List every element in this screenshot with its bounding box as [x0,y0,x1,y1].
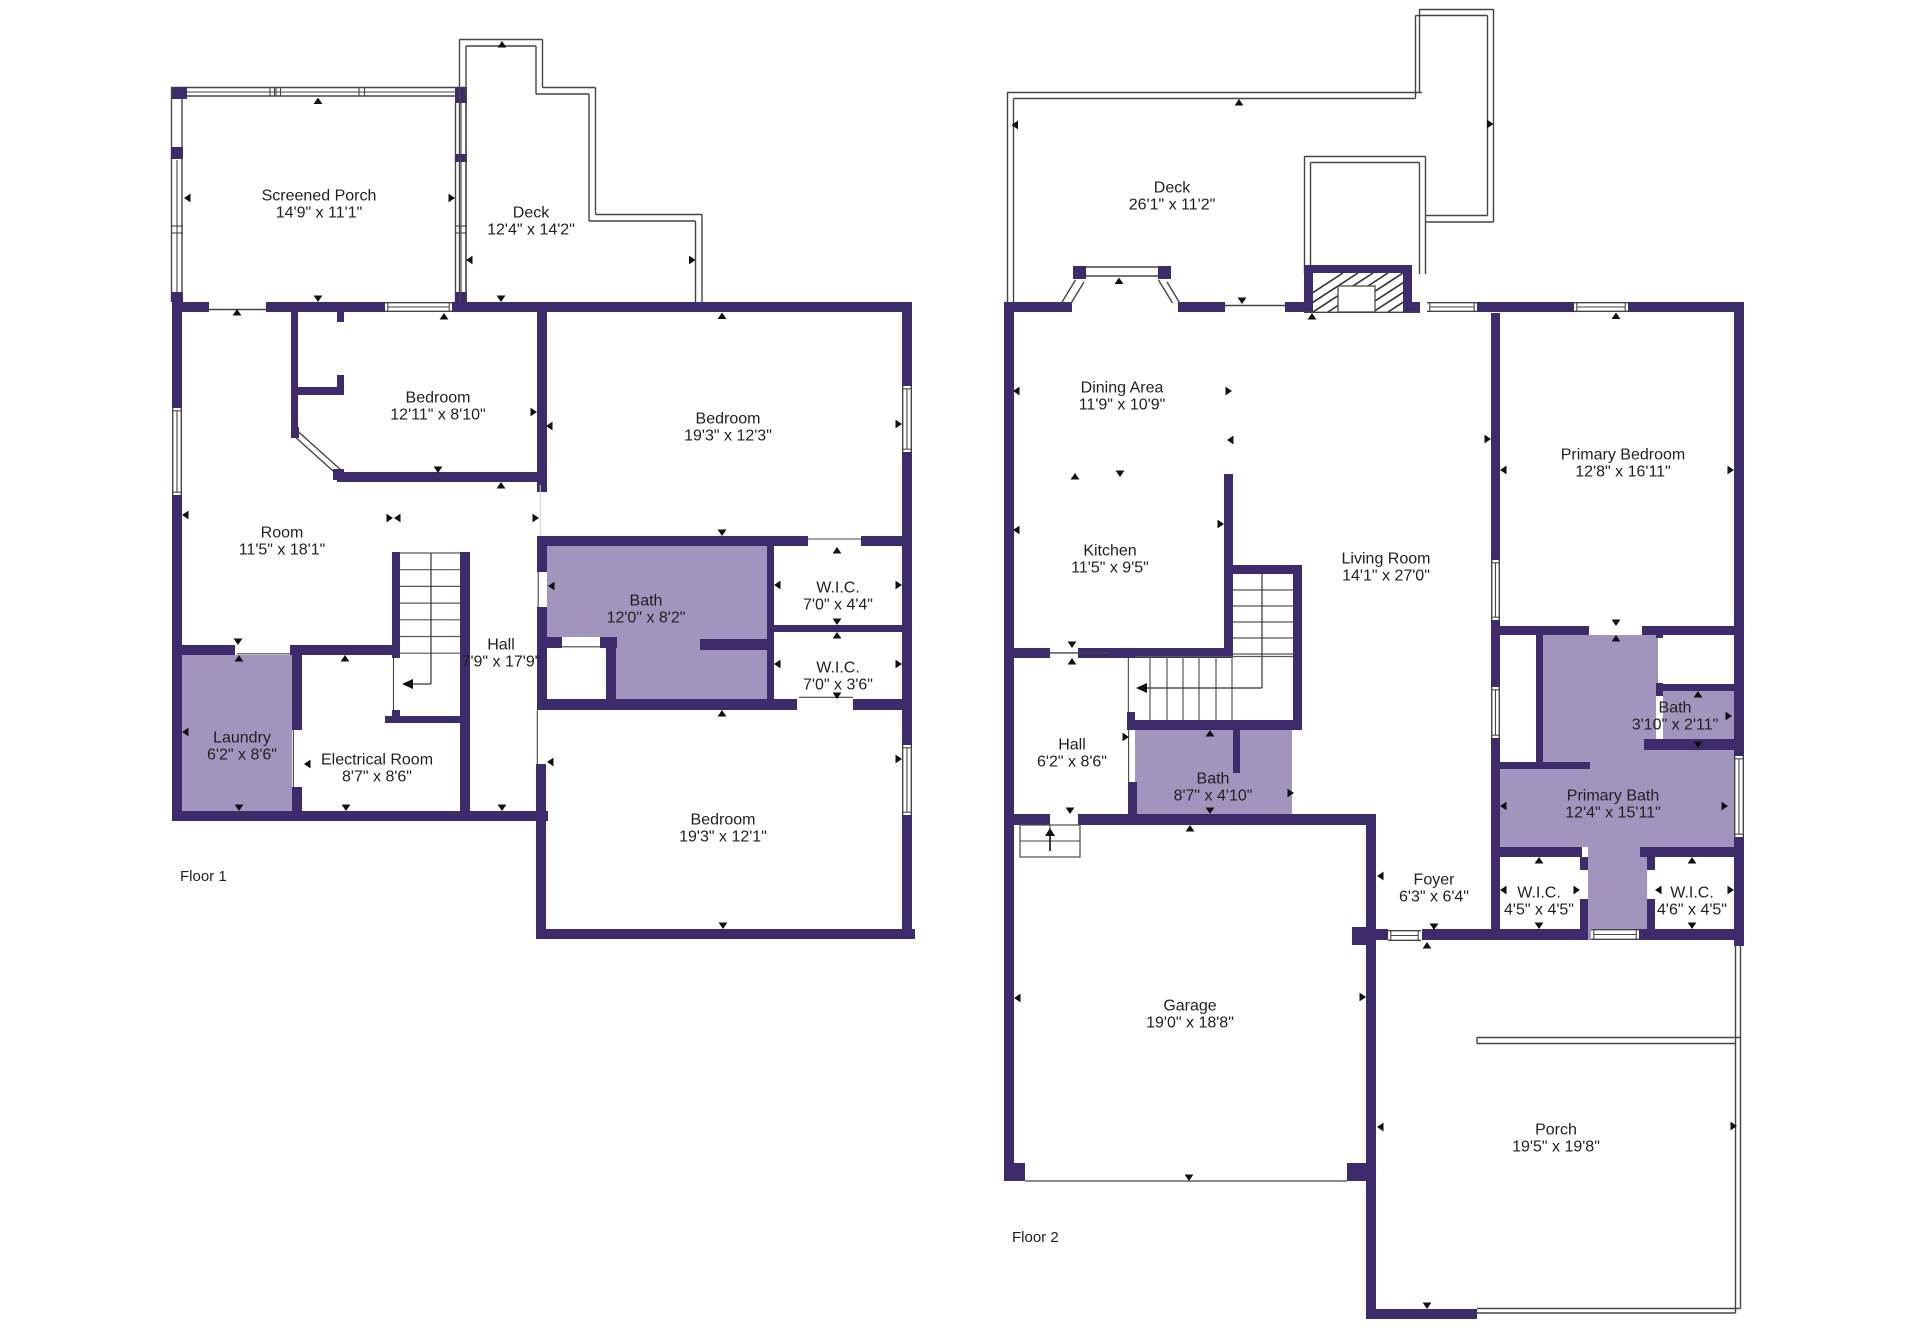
svg-text:Kitchen: Kitchen [1083,543,1136,560]
svg-text:19'0" x 18'8": 19'0" x 18'8" [1146,1015,1234,1032]
svg-text:12'4" x 15'11": 12'4" x 15'11" [1565,805,1660,822]
svg-text:11'5" x 18'1": 11'5" x 18'1" [239,542,326,559]
svg-text:W.I.C.: W.I.C. [1517,885,1561,902]
svg-text:Bedroom: Bedroom [406,390,471,407]
svg-text:Foyer: Foyer [1414,872,1456,889]
svg-text:Living Room: Living Room [1342,551,1431,568]
svg-text:Laundry: Laundry [213,730,271,747]
svg-text:14'9" x 11'1": 14'9" x 11'1" [276,205,363,222]
svg-text:19'5" x 19'8": 19'5" x 19'8" [1512,1139,1600,1156]
svg-text:Floor 1: Floor 1 [180,868,227,885]
svg-text:W.I.C.: W.I.C. [816,580,860,597]
svg-text:Deck: Deck [513,205,550,222]
svg-text:19'3" x 12'1": 19'3" x 12'1" [679,829,767,846]
svg-text:11'5" x 9'5": 11'5" x 9'5" [1071,560,1149,577]
svg-text:Bedroom: Bedroom [696,411,761,428]
svg-text:3'10" x 2'11": 3'10" x 2'11" [1632,717,1719,734]
svg-text:Porch: Porch [1535,1122,1577,1139]
svg-text:Primary Bedroom: Primary Bedroom [1561,447,1685,464]
svg-text:26'1" x 11'2": 26'1" x 11'2" [1129,197,1216,214]
svg-text:8'7" x 4'10": 8'7" x 4'10" [1174,788,1253,805]
svg-text:Screened Porch: Screened Porch [262,188,377,205]
svg-text:Bedroom: Bedroom [691,812,756,829]
svg-text:6'2" x 8'6": 6'2" x 8'6" [1037,754,1107,771]
svg-text:Hall: Hall [487,637,515,654]
svg-text:W.I.C.: W.I.C. [816,660,860,677]
svg-text:12'4" x 14'2": 12'4" x 14'2" [487,222,575,239]
svg-text:12'8" x 16'11": 12'8" x 16'11" [1575,464,1670,481]
svg-text:Electrical Room: Electrical Room [321,752,433,769]
svg-text:4'5" x 4'5": 4'5" x 4'5" [1504,902,1574,919]
svg-text:Garage: Garage [1163,998,1216,1015]
svg-text:W.I.C.: W.I.C. [1670,885,1714,902]
svg-text:19'3" x 12'3": 19'3" x 12'3" [684,428,772,445]
svg-text:Dining Area: Dining Area [1081,380,1164,397]
svg-text:4'6" x 4'5": 4'6" x 4'5" [1657,902,1727,919]
svg-text:8'7" x 8'6": 8'7" x 8'6" [342,769,412,786]
svg-text:Floor 2: Floor 2 [1012,1229,1059,1246]
svg-text:Bath: Bath [1197,771,1230,788]
svg-text:Hall: Hall [1058,737,1086,754]
svg-text:Room: Room [261,525,304,542]
svg-text:Primary Bath: Primary Bath [1567,788,1659,805]
svg-text:7'0" x 4'4": 7'0" x 4'4" [803,597,873,614]
svg-text:12'11" x 8'10": 12'11" x 8'10" [390,407,485,424]
svg-text:Deck: Deck [1154,180,1191,197]
svg-text:6'2" x 8'6": 6'2" x 8'6" [207,747,277,764]
svg-text:11'9" x 10'9": 11'9" x 10'9" [1079,397,1166,414]
svg-text:14'1" x 27'0": 14'1" x 27'0" [1342,568,1430,585]
svg-text:7'9" x 17'9": 7'9" x 17'9" [462,654,541,671]
svg-text:7'0" x 3'6": 7'0" x 3'6" [803,677,873,694]
svg-text:6'3" x 6'4": 6'3" x 6'4" [1399,889,1469,906]
svg-text:Bath: Bath [1659,700,1692,717]
svg-text:Bath: Bath [630,593,663,610]
svg-text:12'0" x 8'2": 12'0" x 8'2" [607,610,686,627]
